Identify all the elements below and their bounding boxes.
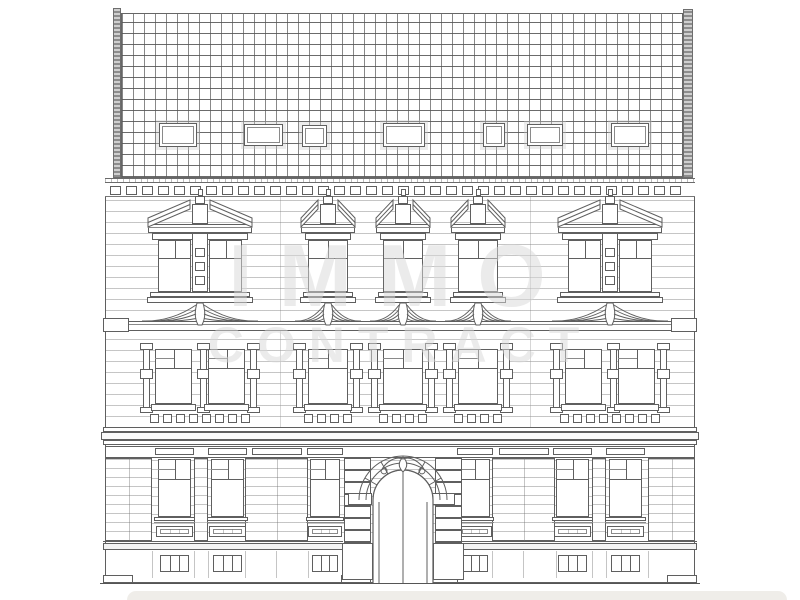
- dentil-block: [238, 186, 249, 195]
- basement-window: [213, 555, 242, 572]
- lintel-panel: [499, 448, 549, 455]
- apron-panel: [160, 529, 189, 534]
- dentil-block: [414, 186, 425, 195]
- middle-window-sill: [454, 404, 502, 411]
- panel-square: [176, 414, 185, 423]
- panel-square: [317, 414, 326, 423]
- panel-square: [586, 414, 595, 423]
- apron-panel: [611, 529, 640, 534]
- rusticated-pier: [194, 458, 208, 541]
- dentil-block: [462, 186, 473, 195]
- arch-pier-pedestal: [342, 543, 373, 580]
- ground-window-upper-mullion: [175, 459, 176, 479]
- basement-window-mullion: [568, 555, 569, 572]
- ground-window-upper-mullion: [325, 459, 326, 479]
- ground-window-sill: [207, 517, 248, 521]
- pediment-finial: [605, 196, 615, 204]
- middle-window-sill: [304, 404, 352, 411]
- ground-window-transom: [609, 479, 642, 480]
- panel-square: [379, 414, 388, 423]
- basement-window-mullion: [630, 555, 631, 572]
- basement-window-mullion: [577, 555, 578, 572]
- basement-window-mullion: [621, 555, 622, 572]
- arch-pier-block: [435, 530, 462, 542]
- pier-joint: [524, 458, 525, 541]
- ground-line: [100, 583, 700, 584]
- basement-window: [160, 555, 189, 572]
- roof-tile-grid: [121, 13, 683, 178]
- rusticated-pier: [592, 458, 606, 541]
- mid-cornice-band: [101, 432, 699, 440]
- panel-square: [573, 414, 582, 423]
- panel-square: [392, 414, 401, 423]
- apron-divider: [621, 529, 622, 534]
- pediment-finial-cap: [608, 189, 613, 196]
- apron-divider: [170, 529, 171, 534]
- middle-window-sill: [204, 404, 249, 411]
- pediment-finial-cap: [476, 189, 481, 196]
- middle-window-sill: [151, 404, 196, 411]
- pilaster-block: [140, 369, 153, 379]
- panel-square: [189, 414, 198, 423]
- arch-pier-block: [435, 518, 462, 530]
- panel-square: [405, 414, 414, 423]
- pedestal-foot: [103, 575, 133, 583]
- dentil-block: [366, 186, 377, 195]
- plinth-joint: [152, 551, 153, 578]
- pier-joint: [277, 458, 278, 541]
- dentil-block: [222, 186, 233, 195]
- arch-pier-block: [435, 458, 462, 470]
- ground-window-sill-shadow: [552, 522, 593, 523]
- basement-window: [312, 555, 338, 572]
- pier-joint: [129, 458, 130, 541]
- basement-window-mullion: [232, 555, 233, 572]
- panel-square: [651, 414, 660, 423]
- dentil-block: [574, 186, 585, 195]
- ground-window-upper-pane-line: [158, 469, 175, 470]
- panel-square: [560, 414, 569, 423]
- dentil-block: [350, 186, 361, 195]
- pediment-finial-cap: [326, 189, 331, 196]
- panel-square: [612, 414, 621, 423]
- apron-divider: [471, 529, 472, 534]
- pediment-pedestal: [320, 204, 336, 224]
- arch-pier-block: [344, 506, 371, 518]
- roof-skylight-pane: [386, 126, 422, 144]
- lintel-panel: [553, 448, 592, 455]
- pediment-pedestal: [602, 204, 618, 224]
- window-entablature-line: [558, 227, 662, 228]
- dentil-block: [142, 186, 153, 195]
- panel-square: [493, 414, 502, 423]
- basement-window-mullion: [479, 555, 480, 572]
- ground-window-sill-shadow: [306, 522, 344, 523]
- apron-divider: [329, 529, 330, 534]
- apron-panel: [312, 529, 338, 534]
- plinth-joint: [208, 551, 209, 578]
- panel-square: [638, 414, 647, 423]
- lintel-panel: [252, 448, 302, 455]
- dentil-block: [654, 186, 665, 195]
- roof-skylight-pane: [247, 127, 280, 143]
- apron-divider: [479, 529, 480, 534]
- panel-square: [599, 414, 608, 423]
- dentil-block: [446, 186, 457, 195]
- plinth-joint: [648, 551, 649, 578]
- roof-skylight-pane: [162, 126, 194, 144]
- dentil-block: [302, 186, 313, 195]
- basement-window-mullion: [170, 555, 171, 572]
- dentil-block: [382, 186, 393, 195]
- basement-window-mullion: [223, 555, 224, 572]
- middle-window-sill: [379, 404, 427, 411]
- arch-pier-block: [344, 518, 371, 530]
- arch-impost: [348, 493, 372, 505]
- ground-window-sill: [552, 517, 593, 521]
- panel-square: [343, 414, 352, 423]
- arch-pier-block: [344, 458, 371, 470]
- panel-square: [228, 414, 237, 423]
- ground-window-sill: [605, 517, 646, 521]
- apron-panel: [462, 529, 488, 534]
- dentil-block: [334, 186, 345, 195]
- scanned-elevation-page: IMMO CONTRACT: [0, 0, 800, 600]
- panel-square: [330, 414, 339, 423]
- panel-square: [163, 414, 172, 423]
- dentil-block: [510, 186, 521, 195]
- sill-course-top: [457, 541, 697, 542]
- apron-divider: [179, 529, 180, 534]
- plinth-joint: [523, 551, 524, 578]
- chimney-left: [113, 8, 121, 178]
- dentil-block: [558, 186, 569, 195]
- lintel-panel: [208, 448, 247, 455]
- plinth-joint: [606, 551, 607, 578]
- dentil-block: [542, 186, 553, 195]
- plinth-joint: [308, 551, 309, 578]
- pier-joint: [672, 458, 673, 541]
- apron-divider: [223, 529, 224, 534]
- arch-pier-pedestal: [433, 543, 464, 580]
- pediment-finial: [398, 196, 408, 204]
- ground-window-upper-mullion: [475, 459, 476, 479]
- ground-window-sill-shadow: [207, 522, 248, 523]
- basement-window-mullion: [179, 555, 180, 572]
- apron-divider: [321, 529, 322, 534]
- basement-window-mullion: [329, 555, 330, 572]
- dentil-block: [158, 186, 169, 195]
- basement-window: [558, 555, 587, 572]
- ground-window-upper-pane-line: [460, 469, 475, 470]
- arch-pier-block: [344, 530, 371, 542]
- dentil-block: [526, 186, 537, 195]
- panel-square: [454, 414, 463, 423]
- lintel-band-top: [105, 446, 695, 447]
- pediment-finial: [195, 196, 205, 204]
- roof-skylight-pane: [486, 126, 502, 144]
- apron-divider: [630, 529, 631, 534]
- roof-skylight-pane: [614, 126, 646, 144]
- dentil-block: [254, 186, 265, 195]
- pediment-pedestal: [395, 204, 411, 224]
- dentil-block: [286, 186, 297, 195]
- arch-pier-block: [344, 470, 371, 482]
- plinth-joint: [492, 551, 493, 578]
- dentil-block: [206, 186, 217, 195]
- arch-impost: [431, 493, 455, 505]
- sill-course-band: [103, 543, 343, 550]
- pedestal-foot: [667, 575, 697, 583]
- middle-window-sill: [561, 404, 606, 411]
- ground-window-transom: [158, 479, 191, 480]
- ground-window-sill-shadow: [154, 522, 195, 523]
- dentil-block: [622, 186, 633, 195]
- ground-window-upper-pane-line: [609, 469, 626, 470]
- dentil-block: [110, 186, 121, 195]
- dentil-block: [126, 186, 137, 195]
- panel-square: [150, 414, 159, 423]
- ground-window-sill: [154, 517, 195, 521]
- lintel-panel: [307, 448, 343, 455]
- ground-window-upper-mullion: [626, 459, 627, 479]
- apron-divider: [568, 529, 569, 534]
- basement-window: [462, 555, 488, 572]
- dentil-block: [430, 186, 441, 195]
- ground-window-upper-mullion: [228, 459, 229, 479]
- apron-panel: [213, 529, 242, 534]
- ground-window-transom: [310, 479, 340, 480]
- sill-course-top: [103, 541, 343, 542]
- plinth-joint: [592, 551, 593, 578]
- chimney-right: [683, 9, 693, 178]
- pediment-pedestal: [192, 204, 208, 224]
- basement-window: [611, 555, 640, 572]
- ground-window-transom: [556, 479, 589, 480]
- watermark-line2: CONTRACT: [0, 320, 800, 370]
- basement-window-mullion: [321, 555, 322, 572]
- lintel-panel: [457, 448, 493, 455]
- plinth-joint: [276, 551, 277, 578]
- lintel-panel: [606, 448, 645, 455]
- ground-window-upper-mullion: [573, 459, 574, 479]
- ground-window-transom: [211, 479, 244, 480]
- pediment-finial: [323, 196, 333, 204]
- dentil-block: [590, 186, 601, 195]
- ground-window-upper-pane-line: [556, 469, 573, 470]
- apron-divider: [232, 529, 233, 534]
- watermark-line1: IMMO: [0, 232, 800, 320]
- roof-skylight-pane: [305, 128, 324, 144]
- dentil-block: [638, 186, 649, 195]
- pediment-finial-cap: [198, 189, 203, 196]
- panel-square: [467, 414, 476, 423]
- pediment-pedestal: [470, 204, 486, 224]
- dentil-block: [270, 186, 281, 195]
- dentil-block: [670, 186, 681, 195]
- arch-pier-block: [435, 470, 462, 482]
- door-handle: [394, 542, 397, 549]
- ground-window-sill: [306, 517, 344, 521]
- dentil-block: [174, 186, 185, 195]
- apron-panel: [558, 529, 587, 534]
- pediment-finial-cap: [401, 189, 406, 196]
- panel-square: [202, 414, 211, 423]
- ground-window-transom: [460, 479, 490, 480]
- watermark-banner: [127, 591, 787, 600]
- arch-pier-block: [435, 506, 462, 518]
- pilaster-block: [657, 369, 670, 379]
- dentil-block: [494, 186, 505, 195]
- sill-course-band: [457, 543, 697, 550]
- panel-square: [480, 414, 489, 423]
- panel-square: [215, 414, 224, 423]
- panel-square: [241, 414, 250, 423]
- lintel-panel: [155, 448, 194, 455]
- apron-divider: [577, 529, 578, 534]
- panel-square: [418, 414, 427, 423]
- panel-square: [625, 414, 634, 423]
- panel-square: [304, 414, 313, 423]
- basement-window-mullion: [471, 555, 472, 572]
- roof-skylight-pane: [530, 127, 560, 143]
- ground-window-sill-shadow: [605, 522, 646, 523]
- plinth-joint: [245, 551, 246, 578]
- plinth-joint: [194, 551, 195, 578]
- pediment-finial: [473, 196, 483, 204]
- middle-window-sill: [614, 404, 659, 411]
- plinth-joint: [556, 551, 557, 578]
- ground-window-upper-pane-line: [310, 469, 325, 470]
- ground-window-upper-pane-line: [211, 469, 228, 470]
